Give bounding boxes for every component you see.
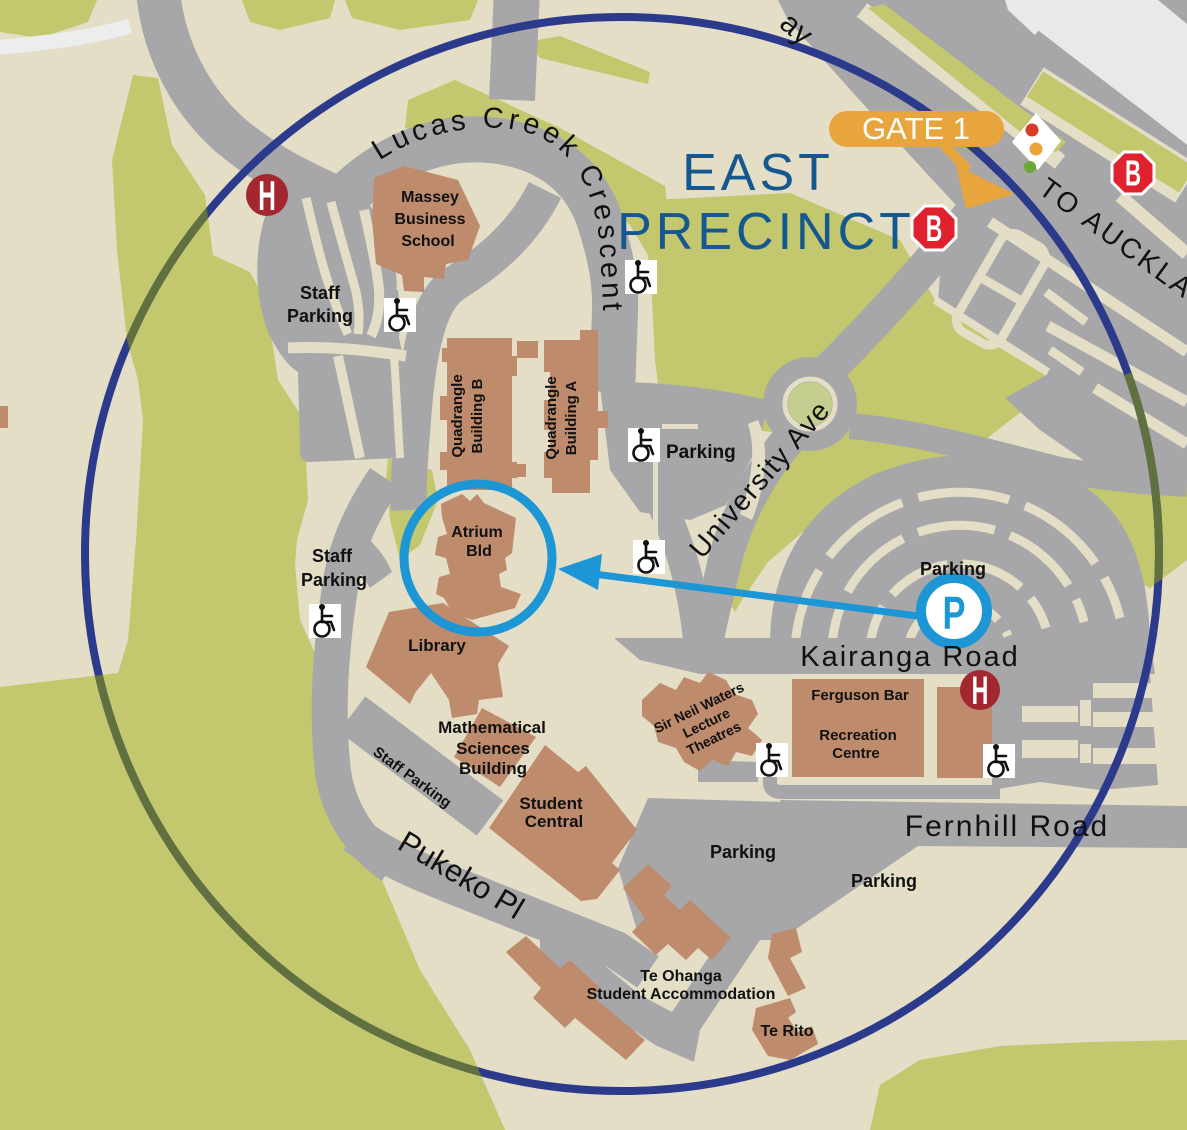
svg-text:Building: Building [459, 759, 527, 778]
svg-text:Massey: Massey [401, 189, 459, 206]
svg-text:B: B [926, 207, 943, 249]
svg-text:Library: Library [408, 636, 466, 655]
svg-text:Te Ohanga: Te Ohanga [640, 968, 722, 985]
svg-text:EAST: EAST [682, 144, 834, 202]
svg-text:Mathematical: Mathematical [438, 718, 546, 737]
svg-text:H: H [258, 173, 276, 219]
svg-text:Atrium: Atrium [451, 524, 503, 541]
svg-text:Building A: Building A [563, 381, 580, 456]
svg-text:Parking: Parking [301, 570, 367, 590]
svg-text:Parking: Parking [666, 442, 736, 463]
svg-text:Te Rito: Te Rito [760, 1023, 813, 1040]
svg-text:Sciences: Sciences [456, 739, 530, 758]
svg-text:H: H [972, 667, 989, 712]
svg-text:P: P [942, 587, 965, 639]
svg-text:PRECINCT: PRECINCT [617, 203, 915, 261]
svg-text:Staff: Staff [300, 283, 341, 303]
svg-text:Bld: Bld [466, 543, 492, 560]
svg-text:Centre: Centre [832, 745, 880, 762]
svg-text:Ferguson Bar: Ferguson Bar [811, 687, 909, 704]
svg-text:GATE 1: GATE 1 [862, 111, 970, 146]
svg-text:Staff: Staff [312, 546, 353, 566]
svg-text:Building B: Building B [469, 378, 486, 453]
svg-text:B: B [1125, 154, 1141, 194]
svg-text:Parking: Parking [920, 559, 986, 579]
svg-text:Student: Student [519, 794, 583, 813]
svg-text:Business: Business [394, 211, 465, 228]
svg-text:Recreation: Recreation [819, 727, 897, 744]
svg-text:Quadrangle: Quadrangle [449, 374, 466, 457]
svg-text:Student Accommodation: Student Accommodation [587, 986, 776, 1003]
svg-text:Fernhill Road: Fernhill Road [905, 810, 1109, 843]
svg-text:School: School [401, 233, 454, 250]
svg-text:Parking: Parking [287, 306, 353, 326]
svg-text:Kairanga Road: Kairanga Road [800, 641, 1019, 673]
svg-text:Parking: Parking [851, 871, 917, 891]
svg-text:Parking: Parking [710, 842, 776, 862]
svg-text:Quadrangle: Quadrangle [543, 376, 560, 459]
svg-text:Central: Central [525, 812, 584, 831]
